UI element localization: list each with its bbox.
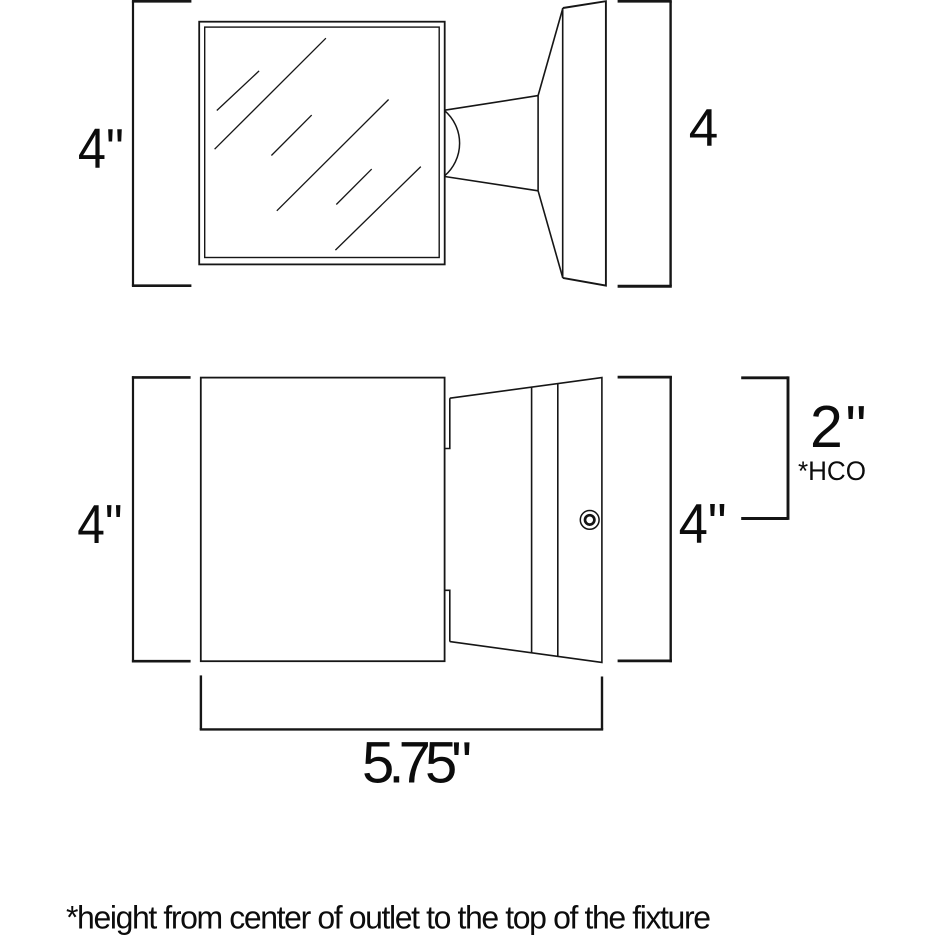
svg-text:4": 4" bbox=[679, 492, 727, 555]
svg-text:5.75": 5.75" bbox=[362, 730, 472, 795]
svg-text:*HCO: *HCO bbox=[798, 456, 866, 486]
svg-text:2": 2" bbox=[810, 394, 867, 460]
svg-text:4": 4" bbox=[78, 117, 124, 181]
svg-text:4: 4 bbox=[689, 99, 718, 158]
svg-text:4": 4" bbox=[77, 493, 122, 555]
svg-text:*height from center of outlet: *height from center of outlet to the top… bbox=[66, 900, 711, 935]
